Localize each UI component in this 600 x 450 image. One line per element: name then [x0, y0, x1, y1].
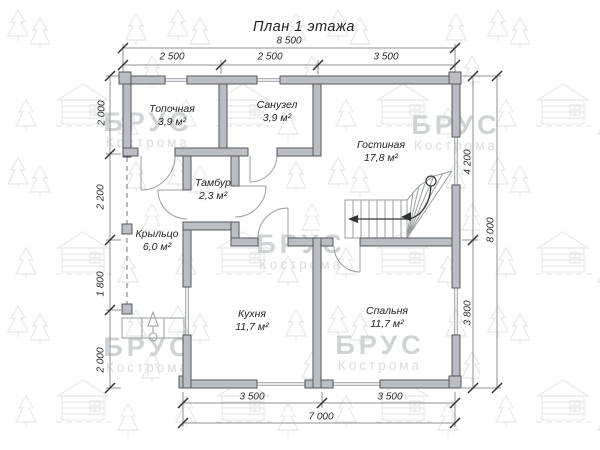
door-boiler-room [141, 156, 175, 190]
watermark-bottom-right: БРУС Кострома [335, 332, 424, 374]
window-kitchen-bottom [257, 383, 305, 386]
room-label-kitchen: Кухня 11,7 м² [235, 308, 268, 334]
dim-bottom-segment-1: 3 500 [239, 392, 264, 403]
stair-direction-arrow [358, 186, 431, 219]
room-name: Санузел [257, 99, 298, 112]
dim-right-total: 8 000 [486, 217, 497, 242]
room-area: 3,9 м² [149, 116, 195, 129]
dim-bottom-segment-2: 3 500 [377, 392, 402, 403]
door-swings [141, 156, 360, 272]
dim-right-segment-2: 3 800 [463, 300, 474, 325]
dim-bottom-total: 7 000 [308, 412, 333, 423]
watermark-brand: БРУС [335, 332, 424, 358]
window-bedroom-bottom [333, 383, 380, 386]
watermark-top-left: БРУС Кострома [103, 109, 192, 151]
window-bathroom [257, 79, 280, 82]
window-bedroom-right [455, 288, 458, 335]
watermark-city: Кострома [103, 135, 192, 151]
watermark-center: БРУС Кострома [256, 231, 345, 273]
porch-outline [122, 157, 184, 341]
room-name: Крыльцо [135, 228, 178, 241]
watermark-bottom-left: БРУС Кострома [103, 334, 192, 376]
room-name: Гостиная [357, 139, 405, 152]
watermark-city: Кострома [103, 360, 192, 376]
watermark-city: Кострома [256, 257, 345, 273]
room-area: 2,3 м² [195, 190, 231, 203]
room-label-living-room: Гостиная 17,8 м² [357, 139, 405, 165]
door-bathroom [250, 156, 277, 182]
room-label-bathroom: Санузел 3,9 м² [257, 99, 298, 125]
watermark-city: Кострома [335, 358, 424, 374]
room-area: 11,7 м² [235, 321, 268, 334]
room-name: Топочная [149, 103, 195, 116]
plan-title: План 1 этажа [253, 19, 355, 35]
dim-right-segment-1: 4 200 [463, 149, 474, 174]
floor-plan-drawing [0, 0, 600, 450]
floor-plan-page: БРУС Кострома БРУС Кострома БРУС Костром… [0, 0, 600, 450]
room-name: Тамбур [195, 177, 231, 190]
watermark-brand: БРУС [103, 109, 192, 135]
dim-top-segment-1: 2 500 [159, 52, 184, 63]
dim-top-segment-3: 3 500 [373, 52, 398, 63]
door-kitchen [258, 208, 288, 238]
room-area: 6,0 м² [135, 241, 178, 254]
dim-top-total: 8 500 [276, 36, 301, 47]
dimension-extension-lines [106, 44, 501, 427]
watermark-brand: БРУС [256, 231, 345, 257]
walls [119, 72, 461, 388]
door-entry [158, 190, 187, 219]
room-label-boiler-room: Топочная 3,9 м² [149, 103, 195, 129]
dim-left-segment-3: 1 800 [96, 271, 107, 296]
dim-left-segment-1: 2 000 [97, 100, 108, 125]
dim-left-segment-2: 2 200 [96, 184, 107, 209]
entry-steps [122, 312, 184, 341]
room-area: 17,8 м² [357, 152, 405, 165]
window-kitchen-left [186, 287, 189, 335]
room-label-bedroom: Спальня 11,7 м² [366, 305, 408, 331]
watermark-brand: БРУС [411, 112, 500, 138]
watermark-top-right: БРУС Кострома [411, 112, 500, 154]
stair-start-circle [426, 176, 436, 186]
door-bedroom [334, 246, 360, 272]
room-area: 11,7 м² [366, 318, 408, 331]
dimension-ticks [105, 43, 502, 428]
room-area: 3,9 м² [257, 112, 298, 125]
window-boiler-room [165, 79, 187, 82]
door-vestibule [235, 186, 266, 217]
watermark-brand: БРУС [103, 334, 192, 360]
windows [165, 79, 457, 386]
staircase [345, 171, 452, 238]
room-name: Кухня [235, 308, 268, 321]
dim-left-segment-4: 2 000 [96, 347, 107, 372]
dim-top-segment-2: 2 500 [257, 52, 282, 63]
room-label-vestibule: Тамбур 2,3 м² [195, 177, 231, 203]
background-sketch-pattern [0, 0, 600, 450]
window-living-room [455, 137, 458, 185]
room-label-porch: Крыльцо 6,0 м² [135, 228, 178, 254]
watermark-city: Кострома [411, 138, 500, 154]
room-name: Спальня [366, 305, 408, 318]
